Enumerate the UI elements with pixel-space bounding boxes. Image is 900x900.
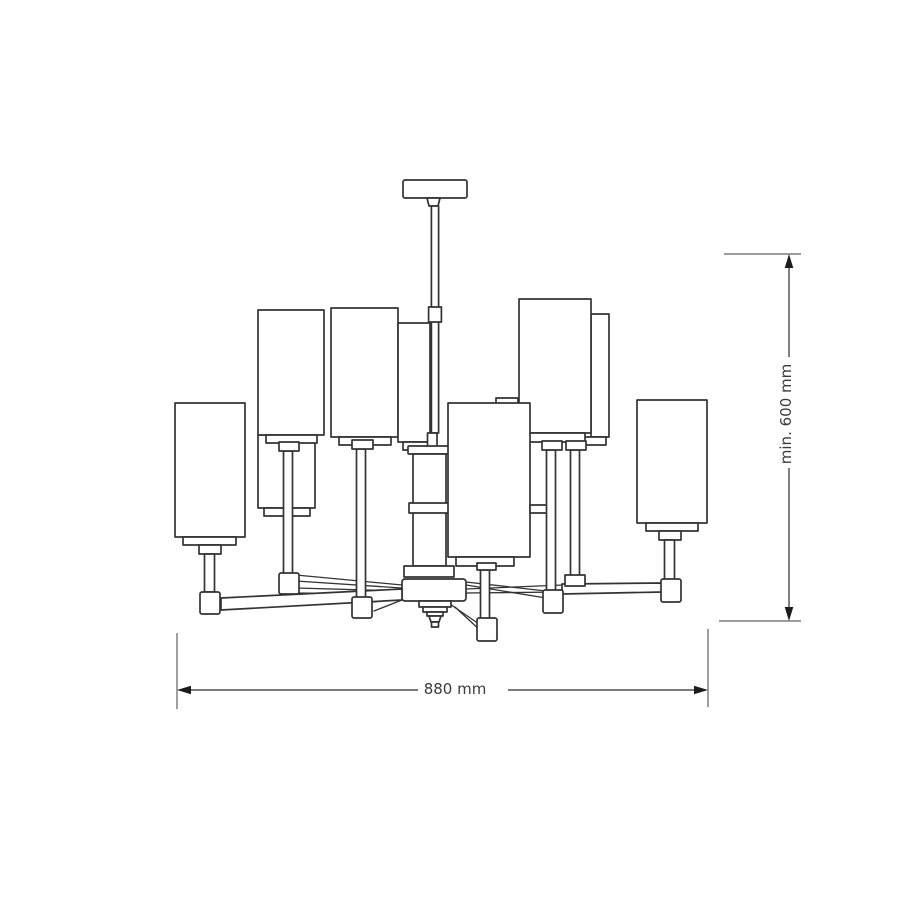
height-dimension-label: min. 600 mm [777,364,795,464]
side-bracket [530,505,548,513]
arrow-left-icon [177,686,191,695]
lampshade [637,400,707,602]
lampshade [175,403,245,614]
canopy-neck [427,198,440,206]
lampshade [258,310,324,443]
lampshade [331,308,398,445]
arrow-right-icon [694,686,708,695]
rod-connector [429,307,442,322]
chandelier-dimension-diagram: 880 mm min. 600 mm [0,0,900,900]
left-long-arm [221,589,402,610]
candle-stem [542,441,563,613]
diagram-canvas: 880 mm min. 600 mm [0,0,900,900]
arrow-up-icon [785,254,794,268]
lampshade [398,323,430,450]
arrow-down-icon [785,607,794,621]
width-dimension: 880 mm [177,629,708,709]
column-neck [428,433,438,447]
height-dimension: min. 600 mm [719,254,801,621]
column-band [409,503,450,513]
column-flange [404,566,454,577]
column-cap [408,446,451,454]
front-arm-drop [477,563,497,641]
ceiling-canopy [403,180,467,198]
finial [419,601,451,627]
central-column [404,433,454,577]
candle-stem [565,441,586,586]
width-dimension-label: 880 mm [424,680,487,698]
arm-hub [402,579,466,601]
